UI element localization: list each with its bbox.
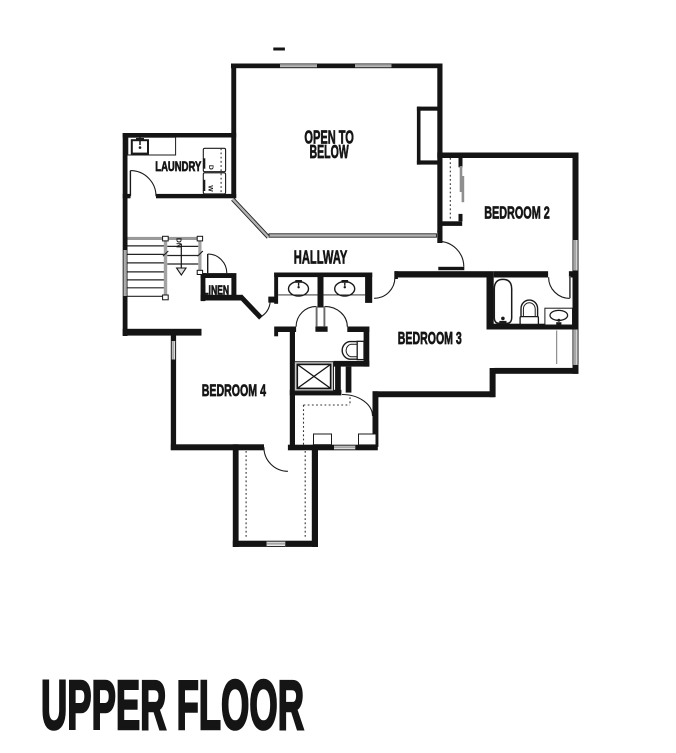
svg-text:DN: DN — [175, 238, 182, 248]
svg-text:BEDROOM 2: BEDROOM 2 — [484, 203, 550, 223]
svg-text:LAUNDRY: LAUNDRY — [155, 158, 201, 174]
svg-text:LINEN: LINEN — [203, 283, 229, 298]
svg-text:BEDROOM 3: BEDROOM 3 — [398, 328, 462, 348]
svg-text:BEDROOM 4: BEDROOM 4 — [202, 381, 267, 400]
svg-text:D: D — [207, 165, 214, 170]
svg-text:HALLWAY: HALLWAY — [294, 248, 348, 268]
svg-text:UPPER FLOOR: UPPER FLOOR — [41, 666, 304, 744]
svg-text:BELOW: BELOW — [310, 142, 349, 162]
svg-text:W: W — [207, 185, 214, 192]
